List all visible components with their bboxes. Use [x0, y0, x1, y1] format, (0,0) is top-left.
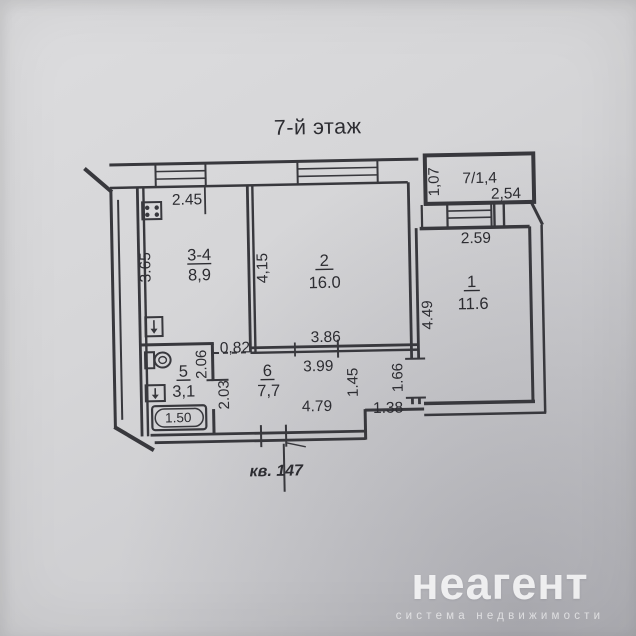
bottom-wall: [150, 408, 426, 494]
dim-bedroom-depth: 4.49: [419, 300, 437, 330]
kitchen-sink-icon: [145, 317, 162, 336]
kitchen-window: [155, 163, 205, 187]
hall-area: 7,7: [257, 382, 280, 400]
bathroom-area: 3,1: [172, 382, 195, 400]
living-area: 16.0: [308, 274, 340, 293]
dim-entry-niche: 1.38: [373, 399, 403, 417]
dim-tick: [205, 187, 206, 214]
living-window: [297, 160, 377, 185]
dim-hall-top-width: 3.99: [303, 358, 333, 376]
dim-living-width: 3.86: [310, 329, 340, 347]
dim-kitchen-depth: 3.65: [137, 252, 155, 282]
entry-door-swing: [286, 442, 306, 447]
dim-hall-seg1: 1.45: [344, 368, 362, 398]
dim-bedroom-width: 2.59: [461, 230, 491, 248]
dim-hall-bottom-width: 4.79: [302, 398, 332, 416]
kitchen-area: 8,9: [188, 266, 211, 284]
bathtub-icon: 1.50: [152, 405, 206, 430]
dim-hall-seg2: 1.66: [389, 363, 407, 393]
living-number: 2: [319, 252, 329, 270]
dim-kitchen-opening: 0,82: [220, 339, 250, 357]
apartment-number-label: кв. 147: [249, 462, 304, 480]
dim-balcony-depth: 1,07: [425, 167, 443, 197]
floorplan-photo: 7-й этаж: [0, 0, 636, 636]
balcony-label: 7/1,4: [462, 170, 497, 188]
dim-kitchen-width: 2.45: [172, 191, 202, 209]
balcony-side-diagonal: [531, 202, 542, 225]
dim-balcony-width: 2,54: [491, 185, 522, 203]
hall-number: 6: [263, 362, 273, 380]
toilet-icon: [145, 352, 171, 368]
dim-bath-depth1: 2.06: [193, 350, 211, 380]
dim-living-depth: 4,15: [254, 253, 272, 283]
kitchen-number: 3-4: [187, 246, 211, 264]
floor-plan-drawing: 7-й этаж: [0, 0, 636, 636]
dim-bath-depth2: 2.03: [216, 380, 234, 410]
bathroom-number: 5: [179, 363, 189, 381]
bathtub-length-label: 1.50: [165, 410, 192, 426]
bedroom-number: 1: [467, 273, 477, 291]
floor-title: 7-й этаж: [274, 114, 362, 140]
bedroom-window: [448, 203, 491, 227]
bedroom-area: 11.6: [457, 295, 488, 314]
